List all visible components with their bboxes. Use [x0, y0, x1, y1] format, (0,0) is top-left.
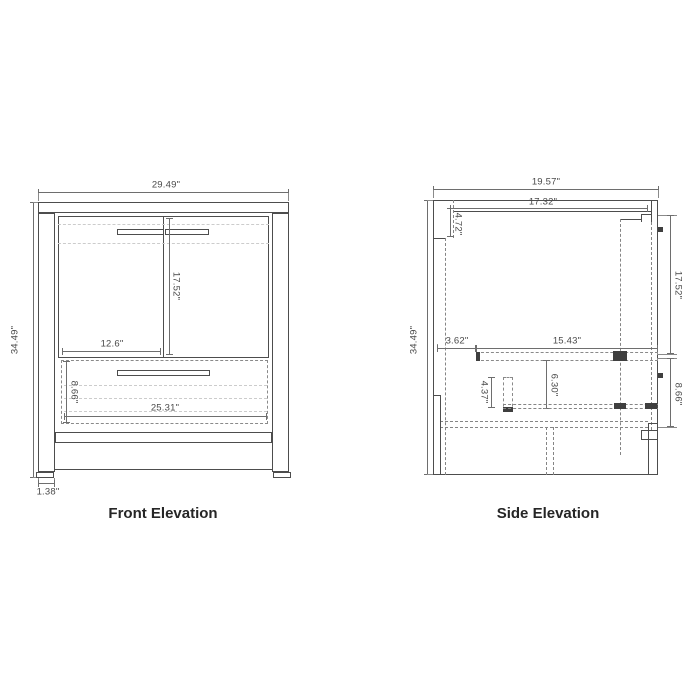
- se-door-back-hidden-line: [651, 222, 652, 430]
- se-door-height-dim-text: 17.52": [673, 271, 684, 299]
- se-glide-rail-bracket: [613, 351, 627, 361]
- se-glide-rail-outline: [476, 352, 658, 361]
- se-drawer-bottom-hidden-line-2: [503, 408, 658, 409]
- se-overall-depth-dim-line: [433, 189, 659, 190]
- se-drawer-height-dim-text: 8.66": [673, 383, 684, 406]
- se-bottom-stretcher-hidden-line-2: [440, 427, 648, 428]
- se-glide-length-dim-line: [476, 348, 658, 349]
- se-front-leg-top: [648, 423, 658, 424]
- se-front-rail-notch-h: [641, 214, 651, 215]
- se-overall-height-dim-line: [427, 200, 428, 475]
- se-back-leg-hidden-line: [445, 238, 446, 475]
- se-overall-depth-dim-text: 19.57": [532, 177, 560, 188]
- se-door-height-ext-bottom: [658, 354, 677, 355]
- se-door-handle-profile: [658, 227, 663, 232]
- se-backsplash-height-dim-text: 4.72": [453, 213, 464, 236]
- se-bracket-height-dim-line: [491, 377, 492, 408]
- se-center-support-hidden-line-1: [546, 427, 547, 475]
- se-top-inner-depth-dim-line: [450, 208, 648, 209]
- se-top-inner-depth-dim-text: 17.32": [529, 197, 557, 208]
- se-drawer-height-ext-bottom: [658, 427, 677, 428]
- se-back-leg-step: [433, 395, 440, 396]
- se-back-rail-bottom: [433, 238, 445, 239]
- se-bracket-height-dim-text: 4.37": [479, 381, 490, 404]
- se-face-frame-hidden-line: [620, 219, 621, 455]
- se-drawer-bottom-bracket-1: [614, 403, 626, 409]
- se-glide-length-dim-text: 15.43": [553, 336, 581, 347]
- se-bottom-stretcher-hidden-line-1: [440, 421, 648, 422]
- se-drawer-height-dim-line: [670, 358, 671, 427]
- se-top-rail-bottom-line: [453, 211, 651, 212]
- se-overall-depth-ext-right: [658, 190, 659, 198]
- side-elevation-title: Side Elevation: [497, 505, 600, 522]
- se-back-offset-dim-line: [437, 348, 476, 349]
- se-front-foot-cap: [641, 430, 658, 440]
- se-front-rail-inner-edge: [651, 200, 652, 222]
- se-backsplash-height-dim-line: [450, 208, 451, 237]
- se-overall-height-dim-text: 34.49": [409, 326, 420, 354]
- se-drawer-bottom-hidden-line-1: [503, 404, 658, 405]
- se-drawer-bottom-bracket-2: [645, 403, 657, 409]
- se-glide-rail-end-cap: [476, 352, 480, 361]
- se-drawer-depth-dim-text: 6.30": [549, 374, 560, 397]
- se-overall-depth-ext-left: [433, 190, 434, 198]
- se-front-rail-notch-v: [641, 214, 642, 222]
- se-back-leg-front-edge: [440, 395, 441, 475]
- drawing-canvas: 29.49" 34.49" 17.52" 12.6" 8.66": [0, 0, 700, 700]
- se-drawer-depth-dim-line: [546, 360, 547, 409]
- se-center-support-hidden-line-2: [553, 427, 554, 475]
- se-back-offset-dim-text: 3.62": [446, 336, 469, 347]
- se-door-height-dim-line: [670, 215, 671, 354]
- se-drawer-handle-profile: [658, 373, 663, 378]
- side-elevation-view: 19.57" 34.49" 4.72" 17.32" 17.5: [0, 0, 700, 700]
- se-door-top-line: [620, 219, 641, 220]
